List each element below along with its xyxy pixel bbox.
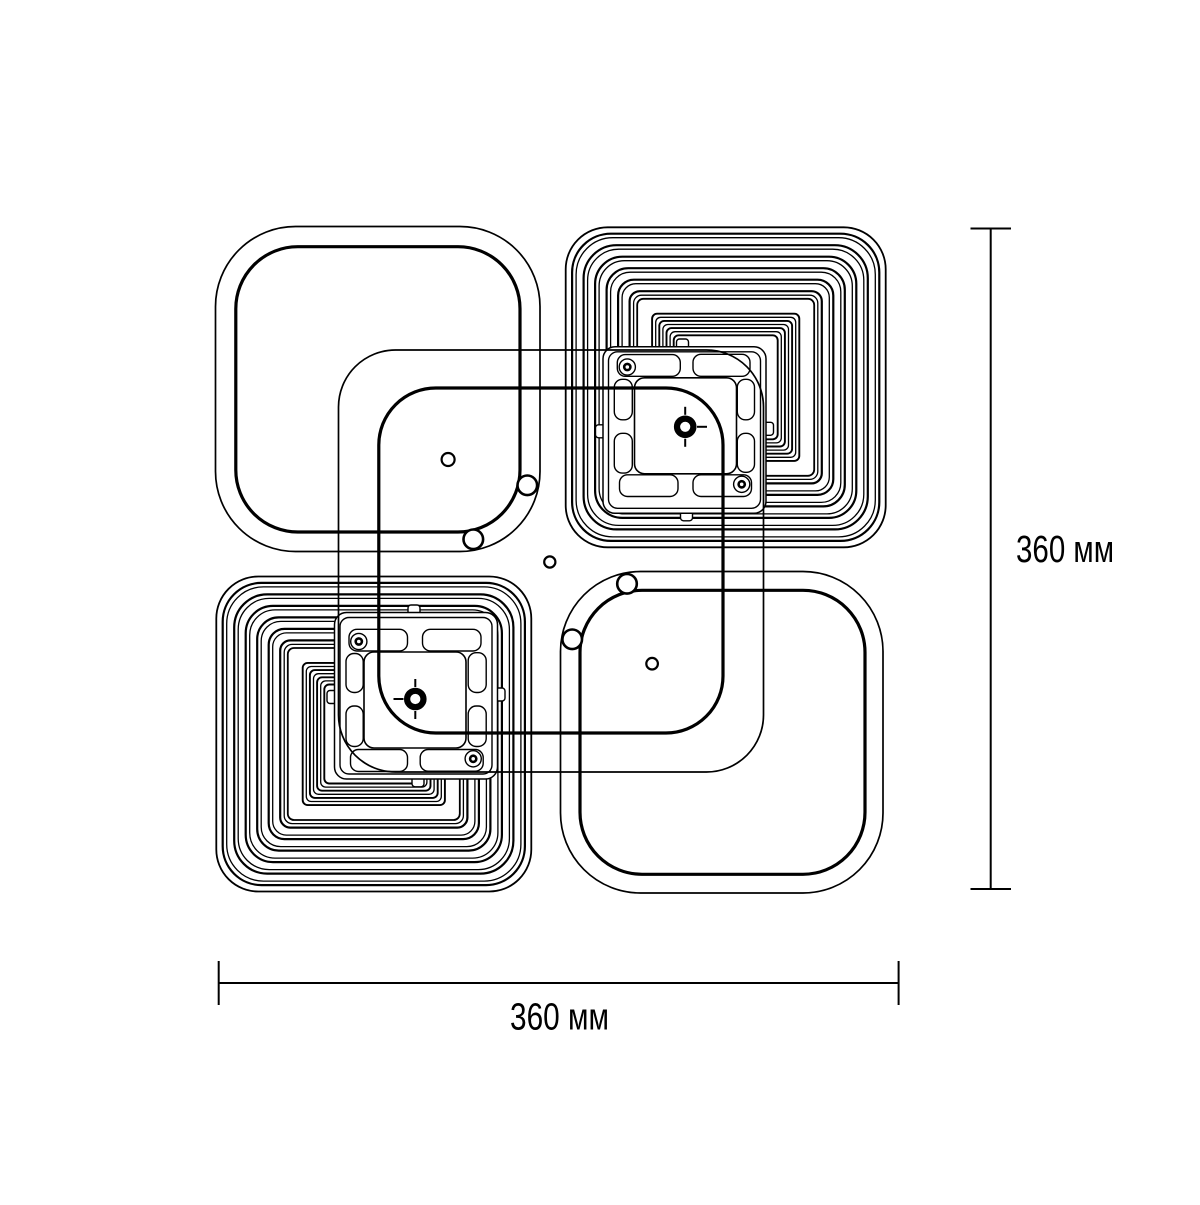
svg-text:360 мм: 360 мм [1016,529,1114,571]
svg-text:360 мм: 360 мм [510,997,609,1039]
